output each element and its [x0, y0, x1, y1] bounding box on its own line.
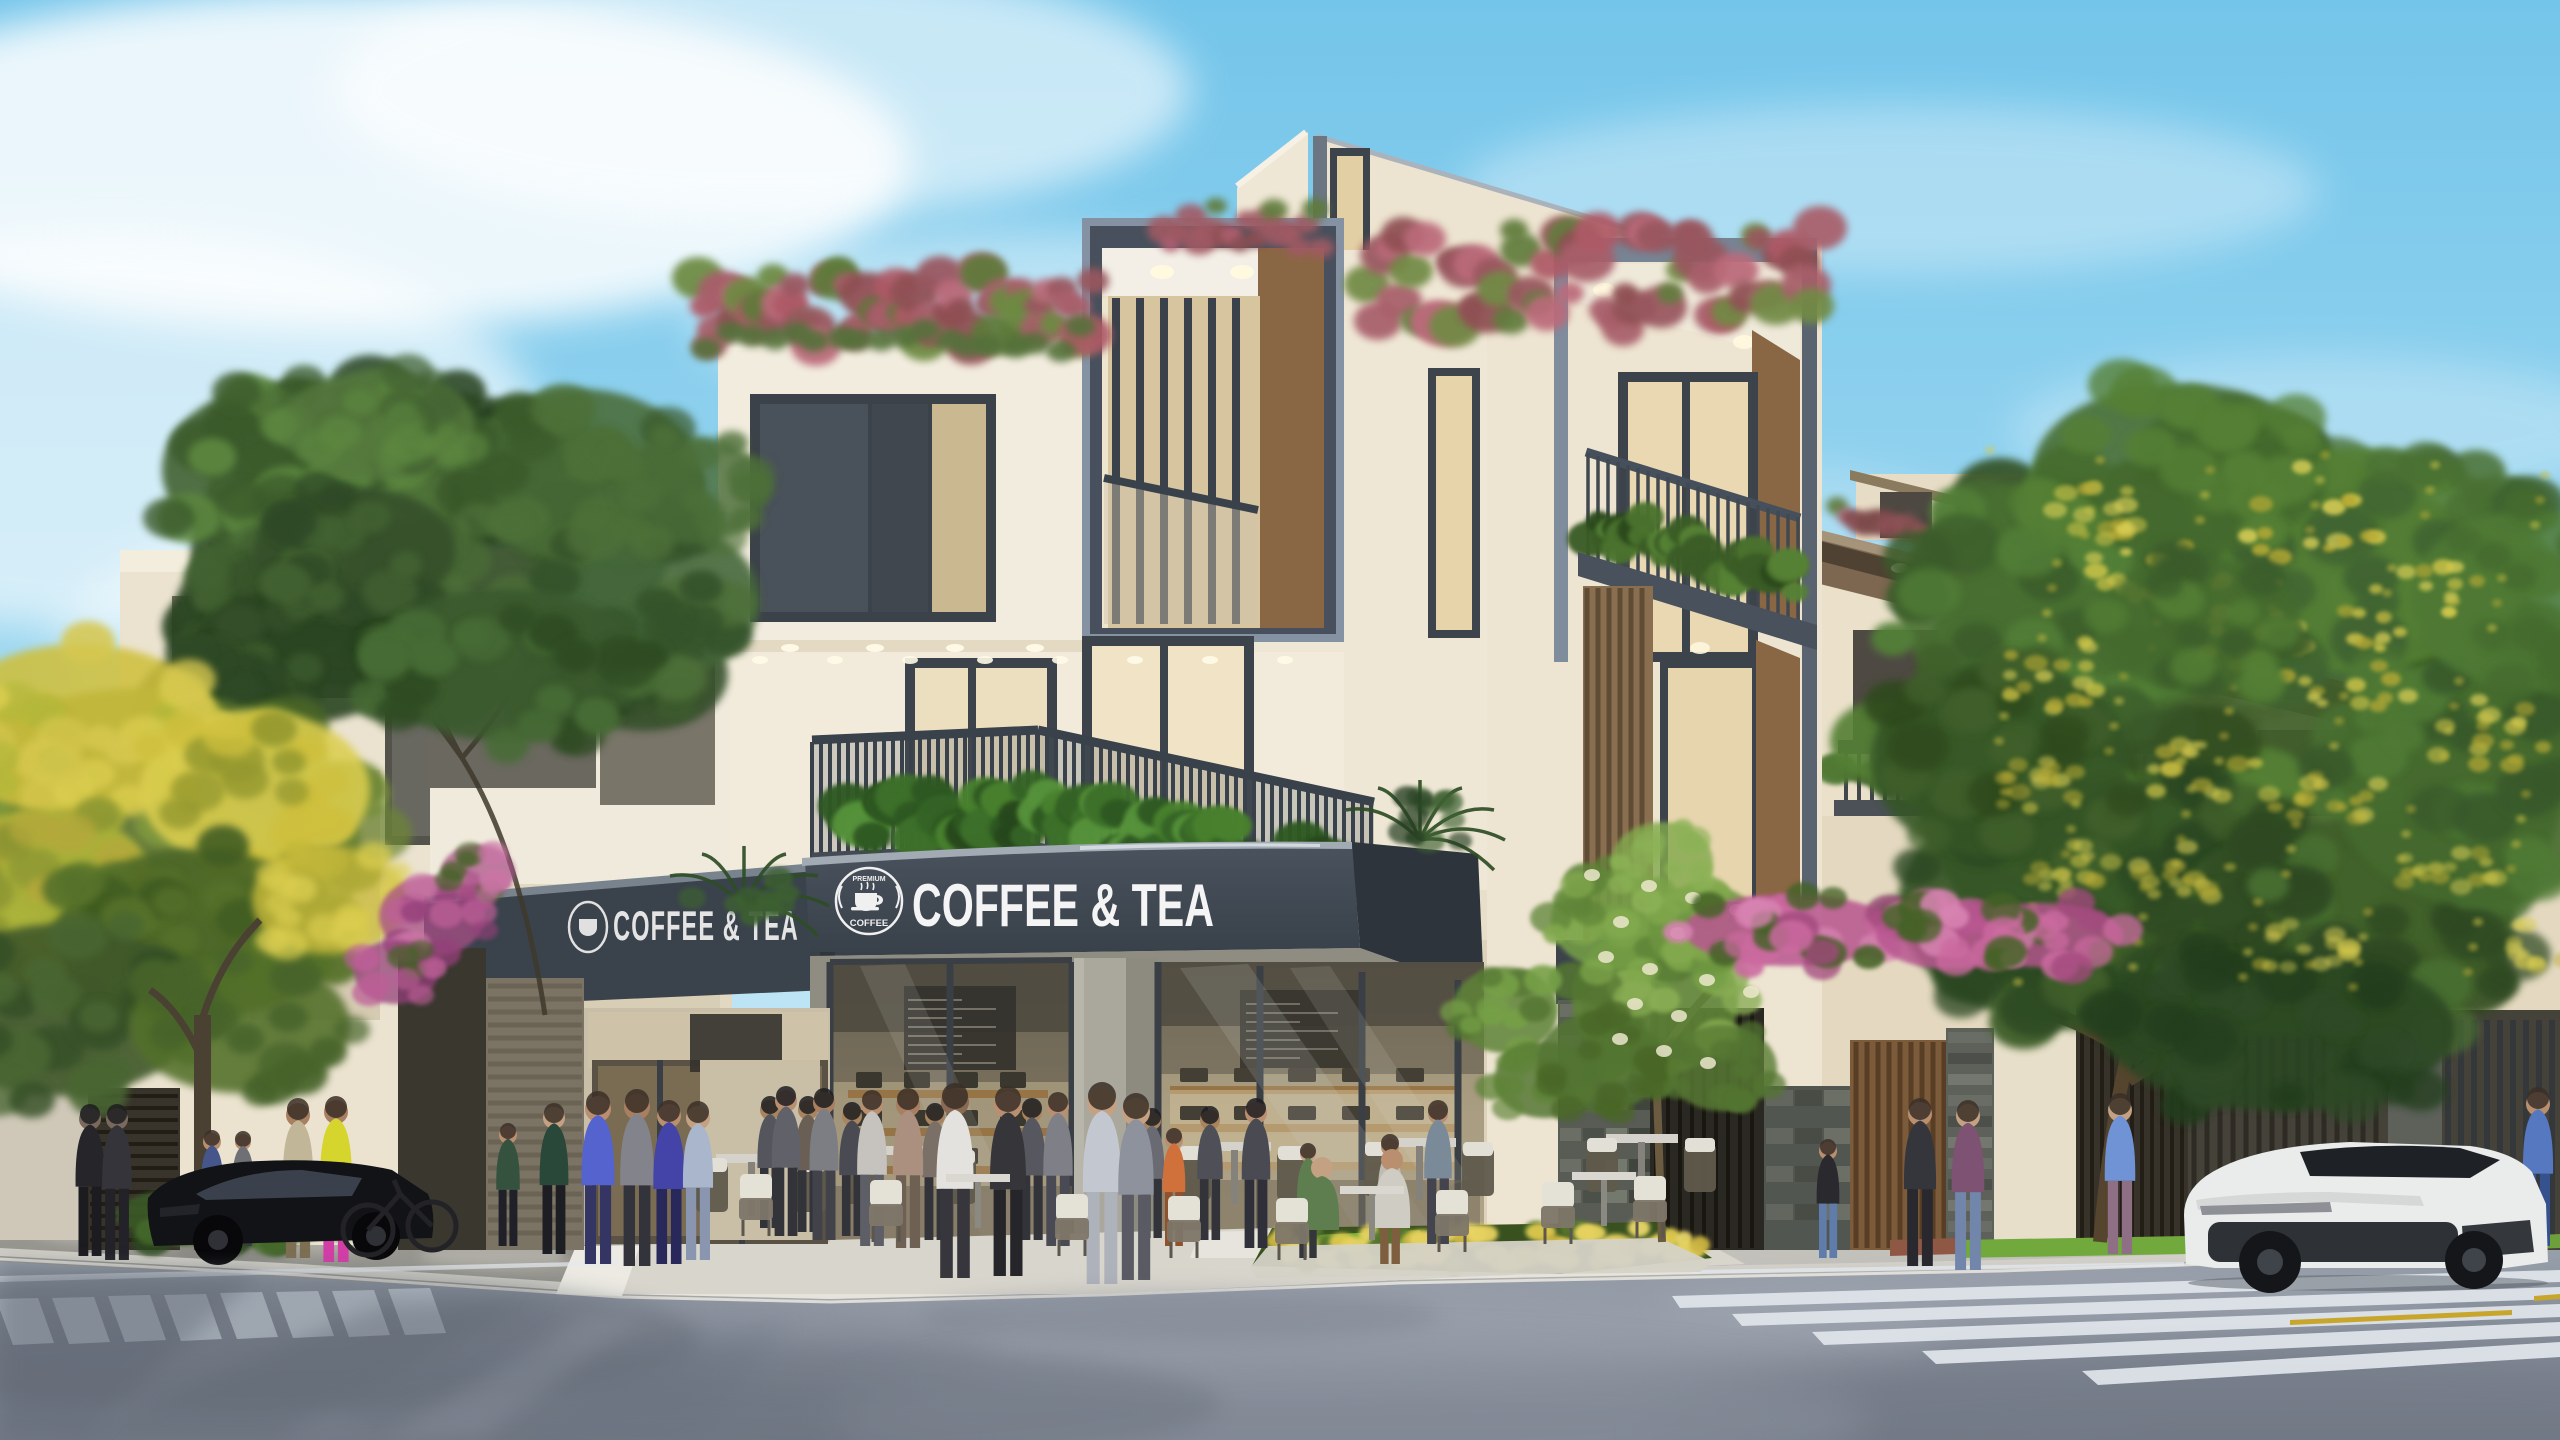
svg-text:PREMIUM: PREMIUM	[852, 876, 885, 883]
svg-text:COFFEE: COFFEE	[850, 918, 889, 929]
svg-text:COFFEE & TEA: COFFEE & TEA	[912, 872, 1214, 939]
